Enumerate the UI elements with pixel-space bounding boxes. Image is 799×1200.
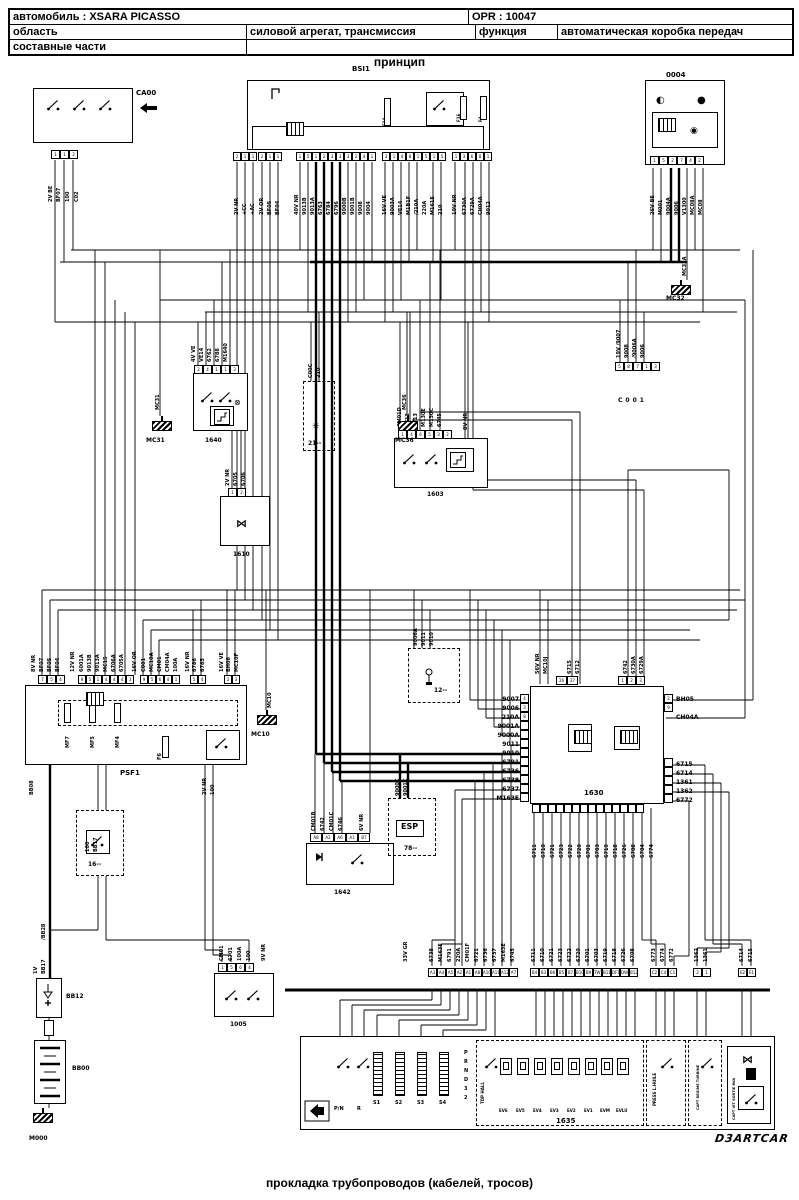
label: S1	[373, 1100, 380, 1106]
wire-label: 26V BE	[651, 195, 656, 215]
label: M163E	[479, 796, 519, 802]
pin-cell	[612, 804, 620, 813]
pin-cell: 2	[194, 365, 203, 374]
label: 6715	[676, 762, 693, 768]
strip-b-pins: B4B3B6B5B7B10B9TW1B11DF1DW1B12	[530, 968, 638, 977]
pin-cell: 4	[360, 152, 368, 161]
wire-label: 6746	[339, 817, 344, 831]
wire-label: 6715	[749, 948, 754, 962]
wire-label: 210	[439, 205, 444, 215]
pin-cell: 3	[434, 430, 443, 439]
evlu-solenoid-icon	[617, 1058, 629, 1075]
wire-label: BF05	[48, 658, 53, 672]
wire-label: 4V VE	[192, 346, 197, 362]
strip-p-pins: 21	[693, 968, 711, 977]
label: P/N	[334, 1106, 344, 1112]
pin-cell: 9	[140, 675, 148, 684]
ev2-solenoid-icon	[568, 1058, 580, 1075]
wire-label: BF04	[56, 658, 61, 672]
pin-cell	[664, 776, 673, 785]
wire-label: 6710	[542, 844, 547, 858]
wire-label: 1361	[704, 948, 709, 962]
pin-cell: A8	[310, 833, 322, 842]
mc31-ground	[152, 416, 172, 431]
watermark: D3ARTCAR	[714, 1132, 790, 1145]
wire-label: 6791	[448, 948, 453, 962]
wire-label: MF7	[66, 736, 71, 748]
pin-cell: DF1	[611, 968, 620, 977]
ca00-label: CA00	[136, 90, 156, 96]
pin-cell: 2	[69, 150, 78, 159]
wire-label: 220A	[423, 201, 428, 215]
wire-label: 6774	[661, 948, 666, 962]
wire-label: BH08	[227, 657, 232, 672]
fuse-mf7-icon	[64, 703, 71, 723]
label: 6714	[676, 771, 693, 777]
pin-cell: 1	[274, 152, 282, 161]
label: R	[357, 1106, 361, 1112]
wire-label: MC10	[268, 692, 273, 708]
unit-1610-pins: 12	[228, 488, 246, 497]
wire-label: 6796	[335, 201, 340, 215]
wire-label: MC15	[104, 656, 109, 672]
unit-1630-pins-bottom	[532, 804, 644, 813]
wire-label: MF4	[116, 736, 121, 748]
wire-label: BF07	[57, 188, 62, 202]
wire-label: M163E	[439, 943, 444, 962]
mc36-ground	[398, 416, 418, 431]
pin-cell: A12	[500, 968, 509, 977]
wire-label: 9013A	[96, 654, 101, 672]
wire-label: 6763	[319, 201, 324, 215]
wire-label: MC08	[699, 199, 704, 215]
unit-1635-label: 1635	[556, 1118, 575, 1124]
pin-cell: B5	[557, 968, 566, 977]
wire-label: 9012	[487, 201, 492, 215]
label: 9006	[479, 706, 519, 712]
pin-cell: 5	[227, 963, 236, 972]
pin-cell: 2	[352, 152, 360, 161]
wire-label: CM04A	[166, 653, 171, 672]
pin-cell: 2	[258, 152, 266, 161]
wire-label: 6703	[596, 844, 601, 858]
bsi1-pins-b: 211	[258, 152, 282, 161]
wire-label: 6715	[568, 660, 573, 674]
wire-label: 2V OR	[260, 198, 265, 215]
wire-label: M001	[659, 200, 664, 215]
unit-16-label: 16--	[88, 862, 101, 868]
pin-cell: 9	[664, 703, 673, 712]
unit-1642-label: 1642	[334, 890, 351, 896]
wire-label: MC32A	[683, 257, 688, 276]
mc32-label: MC32	[666, 296, 685, 302]
wire-label: 6708	[632, 844, 637, 858]
pin-cell: 3	[336, 152, 344, 161]
wire-label: 6710	[541, 948, 546, 962]
pin-cell: 5	[422, 152, 430, 161]
wire-label: 9001B	[351, 197, 356, 215]
wire-label: 2V NR	[203, 778, 208, 795]
pin-cell: 1	[51, 150, 60, 159]
coil-s3-icon	[417, 1052, 427, 1096]
fuse-mf5-icon	[89, 703, 96, 723]
wire-label: MC08A	[691, 196, 696, 215]
pin-cell: 26	[556, 676, 567, 685]
pin-cell: A2	[322, 833, 334, 842]
pin-cell	[628, 804, 636, 813]
wire-label: 6720	[578, 844, 583, 858]
label: EV3	[550, 1108, 559, 1114]
pin-cell	[520, 784, 529, 793]
pin-cell: B7	[566, 968, 575, 977]
wire-label: 6785	[201, 658, 206, 672]
wire-label: 6745	[511, 948, 516, 962]
pin-cell: 4	[56, 675, 65, 684]
wire-label: MC10A	[150, 653, 155, 672]
pin-cell: 8	[520, 712, 529, 721]
wire-label: 9003A	[391, 197, 396, 215]
wire-label: 6719	[605, 844, 610, 858]
pin-cell: 2	[237, 488, 246, 497]
pin-cell: 8	[476, 152, 484, 161]
pin-cell: A2	[455, 968, 464, 977]
wire-label: CM01F	[466, 943, 471, 962]
pin-cell: 5	[148, 675, 156, 684]
pin-cell	[540, 804, 548, 813]
psf1-pins-4: 54	[190, 675, 206, 684]
wire-label: CH04A	[479, 196, 484, 215]
ca00-box	[33, 88, 133, 143]
pin-cell: E1	[747, 968, 756, 977]
pin-cell: 5	[86, 675, 94, 684]
wire-label: VE14	[200, 348, 205, 362]
wire-label: 56V NR	[536, 653, 541, 674]
pin-cell	[520, 766, 529, 775]
label: 9001A	[479, 724, 519, 730]
wire-label: 6V NR	[360, 814, 365, 831]
pin-cell: 1	[266, 152, 274, 161]
mc31-label: MC31	[146, 438, 165, 444]
m000-ground	[33, 1108, 53, 1123]
wire-label: 6704	[641, 844, 646, 858]
pin-cell	[548, 804, 556, 813]
label: EV6	[499, 1108, 508, 1114]
ev5-solenoid-icon	[517, 1058, 529, 1075]
bsi1-pins-c: 1512333241	[296, 152, 376, 161]
pin-cell: B3	[539, 968, 548, 977]
pin-cell: 4	[102, 675, 110, 684]
wire-label: 16V VE	[220, 652, 225, 672]
wire-label: 6714	[740, 948, 745, 962]
pin-cell: 1	[642, 362, 651, 371]
wire-label: 6737	[493, 948, 498, 962]
pin-cell: 6	[416, 430, 425, 439]
ic-icon	[286, 122, 304, 136]
wire-label: CAPT VIT SORTIE BVA	[732, 1078, 737, 1120]
wire-label: 9006	[641, 344, 646, 358]
psf1-pins-3: 95641	[140, 675, 180, 684]
pin-cell	[520, 730, 529, 739]
pin-cell	[572, 804, 580, 813]
pin-cell: 1	[390, 152, 398, 161]
bsi1-pins-d: 31481515	[382, 152, 446, 161]
psf1-pins-5: 23	[224, 675, 240, 684]
pin-cell: 7	[633, 362, 642, 371]
bb-fuse-box	[44, 1020, 54, 1036]
mc10-label: MC10	[251, 732, 270, 738]
wire-label: 6701	[587, 844, 592, 858]
pin-cell: 5	[615, 362, 624, 371]
pin-cell: 5	[438, 152, 446, 161]
wire-label: 6742	[624, 660, 629, 674]
esp-label: ESP	[401, 824, 418, 830]
wire-label: CM01C	[330, 812, 335, 831]
wire-label: BF04	[276, 201, 281, 215]
wire-label: 210	[317, 368, 322, 378]
ev1-solenoid-icon	[585, 1058, 597, 1075]
pin-cell: A10	[482, 968, 491, 977]
pin-cell: 1	[430, 152, 438, 161]
diagram-caption: прокладка трубопроводов (кабелей, тросов…	[0, 1176, 799, 1190]
wire-label: /210A	[415, 199, 420, 215]
wiring-diagram-page: автомобиль : XSARA PICASSO OPR : 10047 о…	[0, 0, 799, 1200]
pin-cell: 4	[245, 963, 254, 972]
pin-cell: 3	[126, 675, 134, 684]
pin-cell: 2	[664, 694, 673, 703]
wire-label: C00C	[309, 364, 314, 378]
wire-label: 12V NR	[71, 651, 76, 672]
ev3-solenoid-icon	[551, 1058, 563, 1075]
wire-label: 9V NR	[262, 944, 267, 961]
coil-s2-icon	[395, 1052, 405, 1096]
pin-cell	[532, 804, 540, 813]
pin-cell: 1	[60, 150, 69, 159]
coil-s4-icon	[439, 1052, 449, 1096]
pin-cell: B11	[602, 968, 611, 977]
fuse-f14-icon	[384, 98, 391, 126]
pin-cell: 4	[118, 675, 126, 684]
wire-label: 6773	[652, 948, 657, 962]
indicator-lamp-icon: ●	[697, 90, 706, 108]
wire-label: 6705A	[120, 654, 125, 672]
pin-cell: 2	[693, 968, 702, 977]
wire-label: CM01B	[312, 812, 317, 831]
fuse-f16-icon	[460, 96, 467, 120]
wire-label: 6701	[229, 947, 234, 961]
wire-label: 1V	[34, 967, 39, 974]
pin-cell: 3	[651, 362, 660, 371]
wire-label: 6721	[475, 948, 480, 962]
gauge-icon: ◐	[656, 90, 665, 108]
wire-label: 6784	[327, 201, 332, 215]
pin-cell	[580, 804, 588, 813]
wire-label: 6788	[216, 348, 221, 362]
psf1-pins-1: 754	[38, 675, 65, 684]
c001-label: C001	[618, 398, 647, 404]
unit-1005-pins: 1564	[218, 963, 254, 972]
strip-c-pins: C2C4C1	[650, 968, 677, 977]
coil-s1-icon	[373, 1052, 383, 1096]
wire-label: +CC	[243, 203, 248, 215]
pin-cell: 2	[668, 156, 677, 165]
pin-cell: B6	[548, 968, 557, 977]
wire-label: 6723	[560, 844, 565, 858]
wire-label: 6001A	[80, 654, 85, 672]
label: 2	[464, 1095, 467, 1101]
pin-cell: 1	[172, 675, 180, 684]
wire-label: 6705	[234, 472, 239, 486]
pin-cell: 1	[249, 152, 257, 161]
unit-1603-label: 1603	[427, 492, 444, 498]
wire-label: PRESS L.HUILE	[652, 1073, 657, 1106]
pin-cell	[664, 767, 673, 776]
pin-cell: 1	[212, 365, 221, 374]
pin-cell: 6	[468, 152, 476, 161]
unit-1642-pins: A8A2A6A1B7	[310, 833, 370, 842]
wire-label: 16V NR	[186, 651, 191, 672]
wire-label: 9000C	[396, 778, 401, 796]
wire-label: V1300	[683, 197, 688, 215]
wire-label: 8V NR	[464, 413, 469, 430]
bsi1-pins-a: 211	[233, 152, 257, 161]
pin-cell: A4	[437, 968, 446, 977]
pin-cell: 8	[406, 152, 414, 161]
wire-label: 6719	[604, 948, 609, 962]
unit-1640-label: 1640	[205, 438, 222, 444]
label: EVM	[600, 1108, 610, 1114]
pin-cell: B9	[584, 968, 593, 977]
pin-cell: 4	[686, 156, 695, 165]
label: R	[464, 1059, 468, 1065]
pin-cell: 5	[304, 152, 312, 161]
label: EV4	[533, 1108, 542, 1114]
wire-label: 9000B	[343, 197, 348, 215]
unit-0004-label: 0004	[666, 72, 685, 78]
label: 210A	[479, 715, 519, 721]
wire-label: 9008	[359, 201, 364, 215]
wire-label: 6730A	[632, 656, 637, 674]
wire-label: C02	[75, 191, 80, 202]
wire-label: 9010	[430, 632, 435, 646]
wire-label: 6742	[321, 817, 326, 831]
label: 9011	[479, 742, 519, 748]
wire-label: 33V GR	[404, 941, 409, 962]
pin-cell	[520, 748, 529, 757]
wire-label: 6772	[670, 948, 675, 962]
ev6-solenoid-icon	[500, 1058, 512, 1075]
wire-label: 6706	[242, 472, 247, 486]
pin-cell	[520, 775, 529, 784]
wire-label: M130C	[430, 408, 435, 427]
wire-label: 9008	[625, 344, 630, 358]
wire-label: MC31	[156, 394, 161, 410]
wire-label: 6711	[533, 844, 538, 858]
pin-cell: 2	[320, 152, 328, 161]
wire-label: M1640	[224, 343, 229, 362]
label: P	[464, 1050, 468, 1056]
ic-icon	[574, 730, 592, 744]
label: D	[464, 1077, 468, 1083]
pin-cell: A3	[428, 968, 437, 977]
pin-cell: 3	[520, 703, 529, 712]
wire-label: 6711	[532, 948, 537, 962]
pin-cell: 5	[659, 156, 668, 165]
label: N	[464, 1068, 468, 1074]
ic-icon	[620, 730, 638, 744]
pin-cell	[520, 793, 529, 802]
pin-cell: DW1	[620, 968, 629, 977]
pin-cell: 3	[344, 152, 352, 161]
valve-icon: ⋈	[742, 1050, 753, 1068]
unit-1640-pins: 24113	[194, 365, 239, 374]
pin-cell: TW1	[593, 968, 602, 977]
wire-label: 6729A	[471, 197, 476, 215]
wire-label: 9006	[675, 201, 680, 215]
pin-cell	[520, 739, 529, 748]
pin-cell: 3	[232, 675, 240, 684]
wire-label: 6774	[650, 844, 655, 858]
label: BH05	[676, 697, 694, 703]
strip-e-pins: E2E1	[738, 968, 756, 977]
ev4-solenoid-icon	[534, 1058, 546, 1075]
pin-cell: 1	[650, 156, 659, 165]
label: 1361	[676, 780, 693, 786]
valve-icon: ⋈	[236, 514, 247, 532]
ic-icon	[86, 692, 104, 706]
pin-cell: 27	[567, 676, 578, 685]
wire-label: MC10J	[544, 657, 549, 674]
wire-label: BB08	[30, 780, 35, 795]
connector-icon	[746, 1068, 756, 1080]
label: CH04A	[676, 715, 698, 721]
fuse-mf4-icon	[114, 703, 121, 723]
pin-cell: 7	[38, 675, 47, 684]
wire-label: MC36	[403, 394, 408, 410]
fuse-f4-icon	[480, 96, 487, 120]
wire-label: 6786	[193, 658, 198, 672]
wire-label: 2V NR	[235, 198, 240, 215]
wire-label: 9006A	[414, 628, 419, 646]
label: 6791	[479, 760, 519, 766]
wire-label: 9011	[422, 632, 427, 646]
ca00-pins: 112	[51, 150, 78, 159]
label: 6736	[479, 769, 519, 775]
pin-cell	[664, 794, 673, 803]
pin-cell: C4	[659, 968, 668, 977]
wire-label: 6726	[623, 844, 628, 858]
pin-cell: A5	[446, 968, 455, 977]
psf1-pins-2: 9514443	[78, 675, 134, 684]
c001-pins: 58713	[615, 362, 660, 371]
wire-label: 1362	[695, 948, 700, 962]
pin-cell: 3	[636, 676, 645, 685]
wire-label: 9004A	[667, 197, 672, 215]
unit-1630-pins-left: 438	[520, 694, 529, 802]
unit-12-box	[408, 648, 460, 703]
pin-cell: 1	[368, 152, 376, 161]
wire-label: 6718	[614, 844, 619, 858]
unit-1630-pins-top2: 123	[618, 676, 645, 685]
unit-1630-label: 1630	[584, 790, 603, 796]
unit-12-label: 12--	[434, 688, 447, 694]
wire-label: 6706A	[112, 654, 117, 672]
unit-1005-label: 1005	[230, 1022, 247, 1028]
label: 1362	[676, 789, 693, 795]
pin-cell: E2	[738, 968, 747, 977]
wire-label: BF05	[268, 201, 273, 215]
gauge-icon: ◉	[690, 120, 698, 138]
label: S3	[417, 1100, 424, 1106]
